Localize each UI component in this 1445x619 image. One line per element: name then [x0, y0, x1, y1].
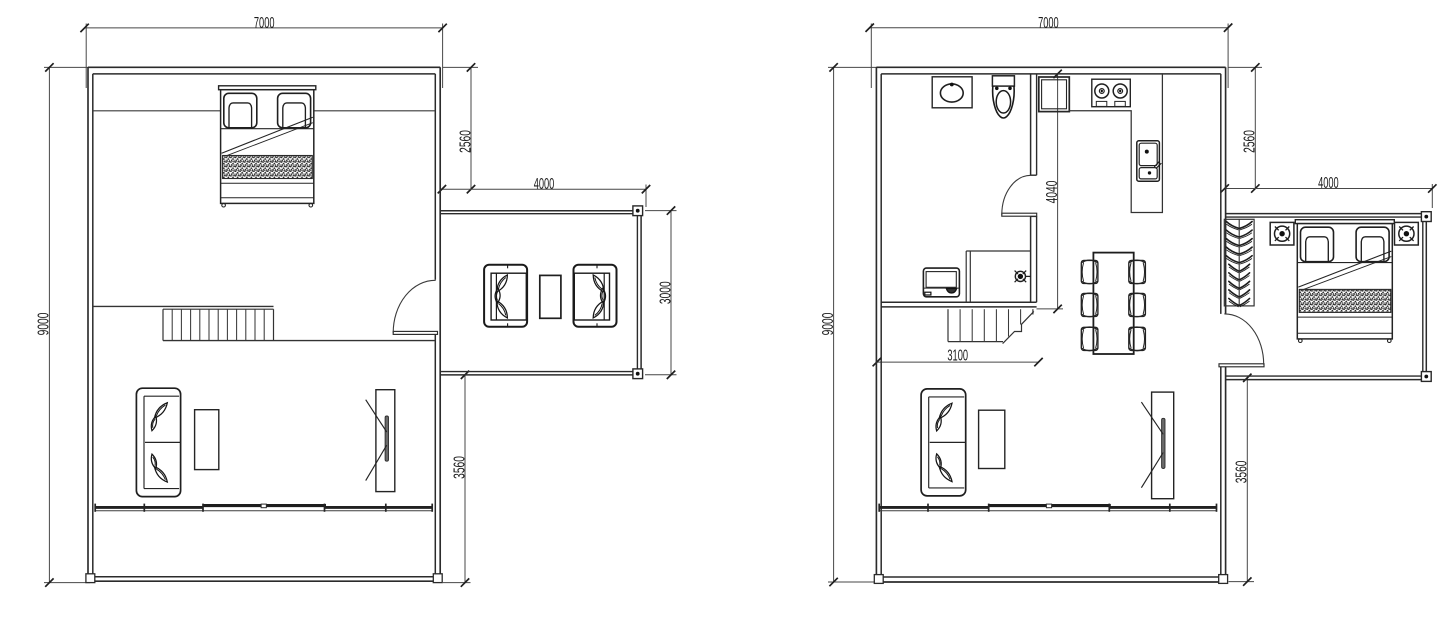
svg-text:3000: 3000 [656, 281, 674, 304]
svg-text:3560: 3560 [450, 456, 468, 479]
svg-text:9000: 9000 [34, 313, 52, 336]
svg-text:4040: 4040 [1043, 181, 1061, 204]
svg-text:9000: 9000 [819, 313, 837, 336]
svg-text:3560: 3560 [1232, 461, 1250, 484]
svg-text:3100: 3100 [947, 346, 968, 364]
svg-text:7000: 7000 [1038, 14, 1059, 32]
svg-text:2560: 2560 [1240, 130, 1258, 153]
svg-text:2560: 2560 [456, 130, 474, 153]
svg-text:7000: 7000 [254, 14, 275, 32]
svg-text:4000: 4000 [1318, 174, 1339, 192]
svg-text:4000: 4000 [534, 174, 555, 192]
